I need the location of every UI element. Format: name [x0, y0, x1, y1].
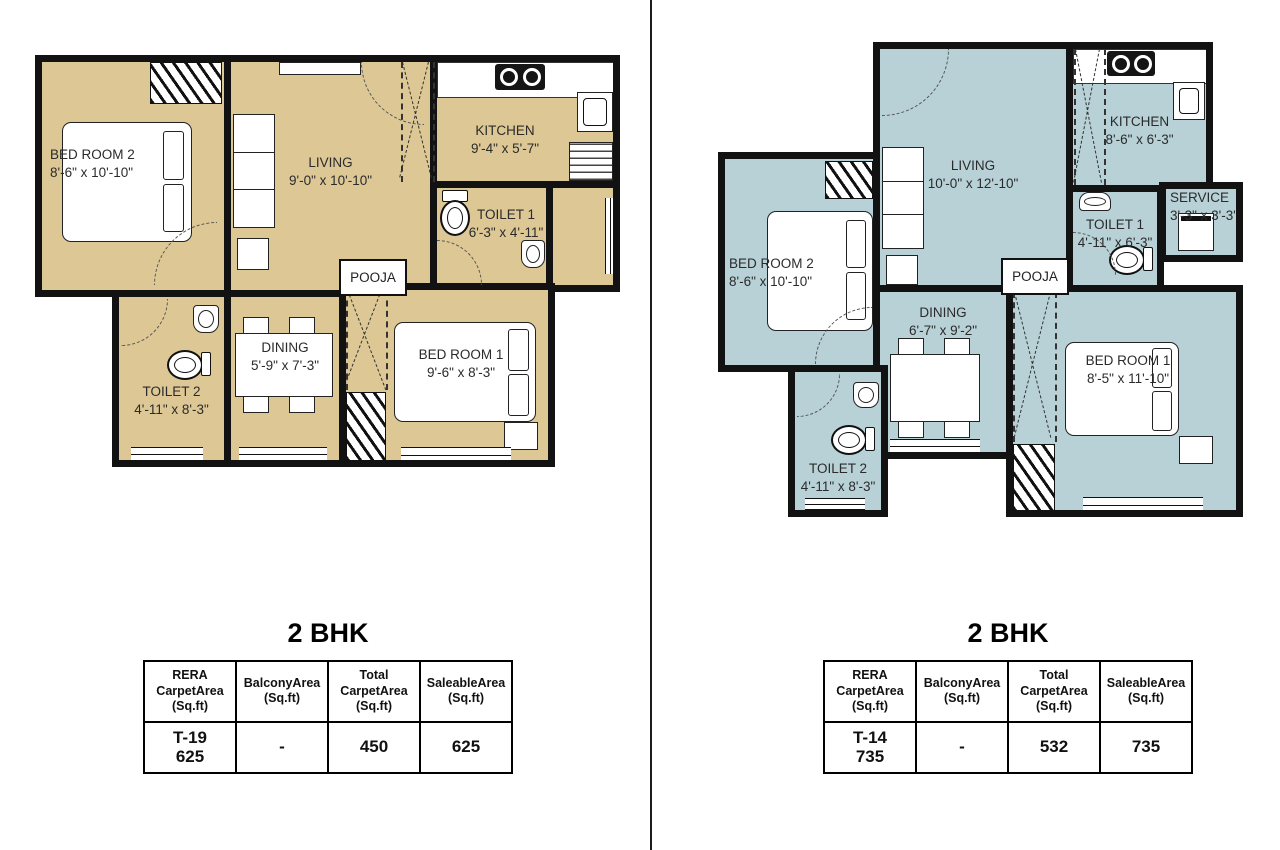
table-header-cell: SaleableArea (Sq.ft): [1100, 661, 1192, 722]
toilet-tank: [865, 427, 875, 451]
dining-table-icon: [890, 354, 980, 422]
side-table-icon: [1179, 436, 1213, 464]
right-plan-title: 2 BHK: [823, 618, 1193, 649]
room-name: BED ROOM 1: [391, 346, 531, 364]
room-name: BED ROOM 2: [729, 255, 861, 273]
toilet-icon: [831, 424, 877, 454]
side-table-icon: [237, 238, 269, 270]
stairs-hatch: [150, 62, 222, 104]
pillow-icon: [1152, 391, 1172, 431]
total-carpet-cell: 532: [1008, 722, 1100, 773]
table-header-row: RERA CarpetArea (Sq.ft) BalconyArea (Sq.…: [144, 661, 512, 722]
stairs-hatch: [1013, 444, 1055, 512]
washbasin-icon: [853, 382, 879, 408]
room-name: BED ROOM 1: [1053, 352, 1203, 370]
door-arc: [797, 374, 840, 417]
room-label: LIVING 10'-0" x 12'-10": [880, 157, 1066, 192]
window: [1083, 497, 1203, 512]
side-table-icon: [886, 255, 918, 285]
room-name: DINING: [880, 304, 1006, 322]
room-label: KITCHEN 9'-4" x 5'-7": [437, 122, 573, 157]
table-header-cell: Total CarpetArea (Sq.ft): [1008, 661, 1100, 722]
window: [890, 439, 980, 453]
room-bedroom2: BED ROOM 2 8'-6" x 10'-10": [35, 55, 231, 297]
room-label: TOILET 2 4'-11" x 8'-3": [795, 460, 881, 495]
rera-area-value: 735: [827, 747, 913, 767]
bed-icon: [62, 122, 192, 242]
table-data-row: T-14 735 - 532 735: [824, 722, 1192, 773]
room-kitchen: KITCHEN 9'-4" x 5'-7": [430, 55, 620, 188]
floor-plan-sheet: BED ROOM 2 8'-6" x 10'-10" LIVING 9'-0" …: [0, 0, 1280, 850]
table-header-cell: Total CarpetArea (Sq.ft): [328, 661, 420, 722]
chair-icon: [289, 317, 315, 334]
room-dims: 8'-6" x 10'-10": [729, 273, 861, 291]
stove-icon: [1107, 51, 1155, 76]
wardrobe-shutter: [346, 290, 388, 390]
room-dims: 5'-9" x 7'-3": [231, 357, 339, 375]
burner-icon: [1134, 55, 1152, 73]
room-name: KITCHEN: [1073, 113, 1206, 131]
rera-area-value: 625: [147, 747, 233, 767]
chair-icon: [944, 421, 970, 438]
right-area-table: RERA CarpetArea (Sq.ft) BalconyArea (Sq.…: [823, 660, 1193, 774]
room-dims: 3'-3" x 3'-3": [1170, 207, 1243, 225]
room-dims: 4'-11" x 6'-3": [1073, 234, 1157, 252]
washbasin-icon: [1079, 192, 1111, 211]
room-label: BED ROOM 2 8'-6" x 10'-10": [729, 255, 861, 290]
room-name: LIVING: [231, 154, 430, 172]
side-table-icon: [504, 422, 538, 450]
sofa-seam: [234, 189, 274, 190]
toilet-icon: [167, 349, 213, 379]
room-name: BED ROOM 2: [50, 146, 182, 164]
room-name: KITCHEN: [437, 122, 573, 140]
stairs-hatch: [346, 392, 386, 462]
washbasin-icon: [521, 240, 545, 268]
balcony-cell: -: [916, 722, 1008, 773]
room-living: LIVING 10'-0" x 12'-10": [873, 42, 1073, 292]
room-label: LIVING 9'-0" x 10'-10": [231, 154, 430, 189]
room-bedroom2: BED ROOM 2 8'-6" x 10'-10": [718, 152, 880, 372]
burner-icon: [1112, 55, 1130, 73]
room-dining: DINING 5'-9" x 7'-3": [224, 290, 346, 467]
room-toilet2: TOILET 2 4'-11" x 8'-3": [788, 365, 888, 517]
unit-rera-cell: T-19 625: [144, 722, 236, 773]
right-floor-plan: LIVING 10'-0" x 12'-10" BED ROOM 2 8'-6"…: [718, 42, 1243, 517]
unit-number: T-14: [827, 728, 913, 748]
saleable-cell: 625: [420, 722, 512, 773]
room-label: BED ROOM 1 8'-5" x 11'-10": [1053, 352, 1203, 387]
table-header-cell: BalconyArea (Sq.ft): [916, 661, 1008, 722]
room-name: TOILET 1: [461, 206, 551, 224]
room-toilet1: TOILET 1 6'-3" x 4'-11": [430, 181, 553, 292]
room-dims: 6'-3" x 4'-11": [461, 224, 551, 242]
unit-rera-cell: T-14 735: [824, 722, 916, 773]
washbasin-icon: [193, 305, 219, 333]
toilet-tank: [201, 352, 211, 376]
toilet-bowl: [831, 425, 867, 455]
stairs-hatch: [825, 161, 873, 199]
left-plan-title: 2 BHK: [143, 618, 513, 649]
room-dims: 6'-7" x 9'-2": [880, 322, 1006, 340]
left-area-table: RERA CarpetArea (Sq.ft) BalconyArea (Sq.…: [143, 660, 513, 774]
room-dims: 9'-6" x 8'-3": [391, 364, 531, 382]
burner-icon: [523, 68, 541, 86]
room-label: DINING 6'-7" x 9'-2": [880, 304, 1006, 339]
room-label: SERVICE 3'-3" x 3'-3": [1170, 189, 1243, 224]
chair-icon: [944, 338, 970, 355]
room-name: TOILET 1: [1073, 216, 1157, 234]
table-header-cell: RERA CarpetArea (Sq.ft): [824, 661, 916, 722]
chair-icon: [898, 421, 924, 438]
window: [805, 498, 865, 510]
door-arc: [121, 299, 168, 346]
room-dims: 8'-6" x 10'-10": [50, 164, 182, 182]
room-service: SERVICE 3'-3" x 3'-3": [1159, 182, 1243, 262]
room-label: BED ROOM 2 8'-6" x 10'-10": [50, 146, 182, 181]
entrance-door-arc: [361, 62, 424, 125]
sofa-seam: [234, 152, 274, 153]
room-dims: 4'-11" x 8'-3": [795, 478, 881, 496]
pooja-room-box: POOJA: [339, 259, 407, 296]
sofa-seam: [883, 214, 923, 215]
diagonal-line: [343, 290, 382, 390]
room-dining: DINING 6'-7" x 9'-2": [873, 285, 1013, 459]
table-header-cell: SaleableArea (Sq.ft): [420, 661, 512, 722]
chair-icon: [289, 396, 315, 413]
room-name: DINING: [231, 339, 339, 357]
table-data-row: T-19 625 - 450 625: [144, 722, 512, 773]
room-utility: [546, 181, 620, 292]
balcony-cell: -: [236, 722, 328, 773]
sink-icon: [577, 92, 613, 132]
total-carpet-cell: 450: [328, 722, 420, 773]
room-label: TOILET 2 4'-11" x 8'-3": [119, 383, 224, 418]
table-header-row: RERA CarpetArea (Sq.ft) BalconyArea (Sq.…: [824, 661, 1192, 722]
pooja-room-box: POOJA: [1001, 258, 1069, 295]
window: [239, 447, 327, 461]
room-name: SERVICE: [1170, 189, 1243, 207]
room-toilet2: TOILET 2 4'-11" x 8'-3": [112, 290, 231, 467]
room-bedroom1: BED ROOM 1 8'-5" x 11'-10": [1006, 285, 1243, 517]
room-label: KITCHEN 8'-6" x 6'-3": [1073, 113, 1206, 148]
door-arc: [437, 240, 482, 285]
diagonal-line: [347, 290, 386, 390]
chair-icon: [243, 317, 269, 334]
entrance-door-arc: [882, 49, 949, 116]
room-label: BED ROOM 1 9'-6" x 8'-3": [391, 346, 531, 381]
room-label: DINING 5'-9" x 7'-3": [231, 339, 339, 374]
wardrobe-shutter: [1013, 292, 1057, 442]
room-label: TOILET 1 4'-11" x 6'-3": [1073, 216, 1157, 251]
room-dims: 8'-5" x 11'-10": [1053, 370, 1203, 388]
room-dims: 9'-0" x 10'-10": [231, 172, 430, 190]
tv-unit-icon: [279, 62, 361, 75]
center-divider-line: [650, 0, 652, 850]
left-floor-plan: BED ROOM 2 8'-6" x 10'-10" LIVING 9'-0" …: [35, 55, 620, 467]
room-name: LIVING: [880, 157, 1066, 175]
room-bedroom1: BED ROOM 1 9'-6" x 8'-3": [339, 283, 555, 467]
toilet-bowl: [167, 350, 203, 380]
room-name: TOILET 2: [795, 460, 881, 478]
room-name: POOJA: [350, 270, 396, 285]
chair-icon: [243, 396, 269, 413]
table-header-cell: RERA CarpetArea (Sq.ft): [144, 661, 236, 722]
room-label: TOILET 1 6'-3" x 4'-11": [461, 206, 551, 241]
window: [131, 447, 203, 461]
window: [605, 198, 615, 274]
room-dims: 9'-4" x 5'-7": [437, 140, 573, 158]
room-name: TOILET 2: [119, 383, 224, 401]
pillow-icon: [163, 184, 184, 232]
saleable-cell: 735: [1100, 722, 1192, 773]
room-dims: 4'-11" x 8'-3": [119, 401, 224, 419]
fridge-icon: [569, 142, 613, 181]
window: [401, 447, 511, 462]
stove-icon: [495, 64, 545, 90]
burner-icon: [500, 68, 518, 86]
room-dims: 8'-6" x 6'-3": [1073, 131, 1206, 149]
room-dims: 10'-0" x 12'-10": [880, 175, 1066, 193]
room-name: POOJA: [1012, 269, 1058, 284]
table-header-cell: BalconyArea (Sq.ft): [236, 661, 328, 722]
room-toilet1: TOILET 1 4'-11" x 6'-3": [1066, 185, 1164, 297]
chair-icon: [898, 338, 924, 355]
unit-number: T-19: [147, 728, 233, 748]
